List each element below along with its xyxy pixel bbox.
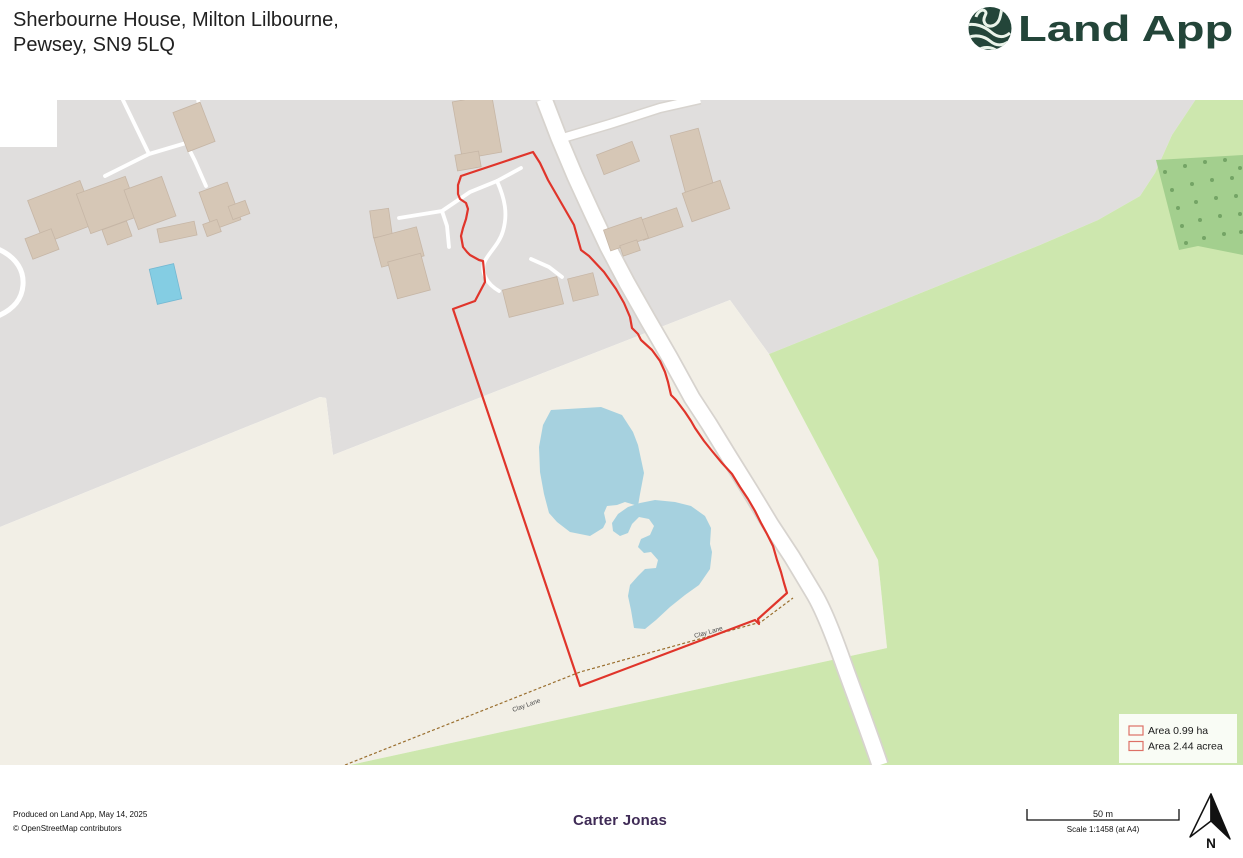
svg-text:50 m: 50 m [1093, 809, 1113, 819]
svg-text:© OpenStreetMap contributors: © OpenStreetMap contributors [13, 824, 122, 833]
svg-text:Scale 1:1458 (at A4): Scale 1:1458 (at A4) [1067, 825, 1140, 834]
svg-text:Carter Jonas: Carter Jonas [573, 812, 667, 829]
svg-text:N: N [1206, 836, 1216, 851]
svg-text:Land App: Land App [1018, 8, 1233, 49]
svg-text:Area 0.99 ha: Area 0.99 ha [1148, 725, 1208, 737]
svg-text:Produced on Land App, May 14,: Produced on Land App, May 14, 2025 [13, 810, 148, 819]
svg-text:Area 2.44 acrea: Area 2.44 acrea [1148, 741, 1223, 753]
